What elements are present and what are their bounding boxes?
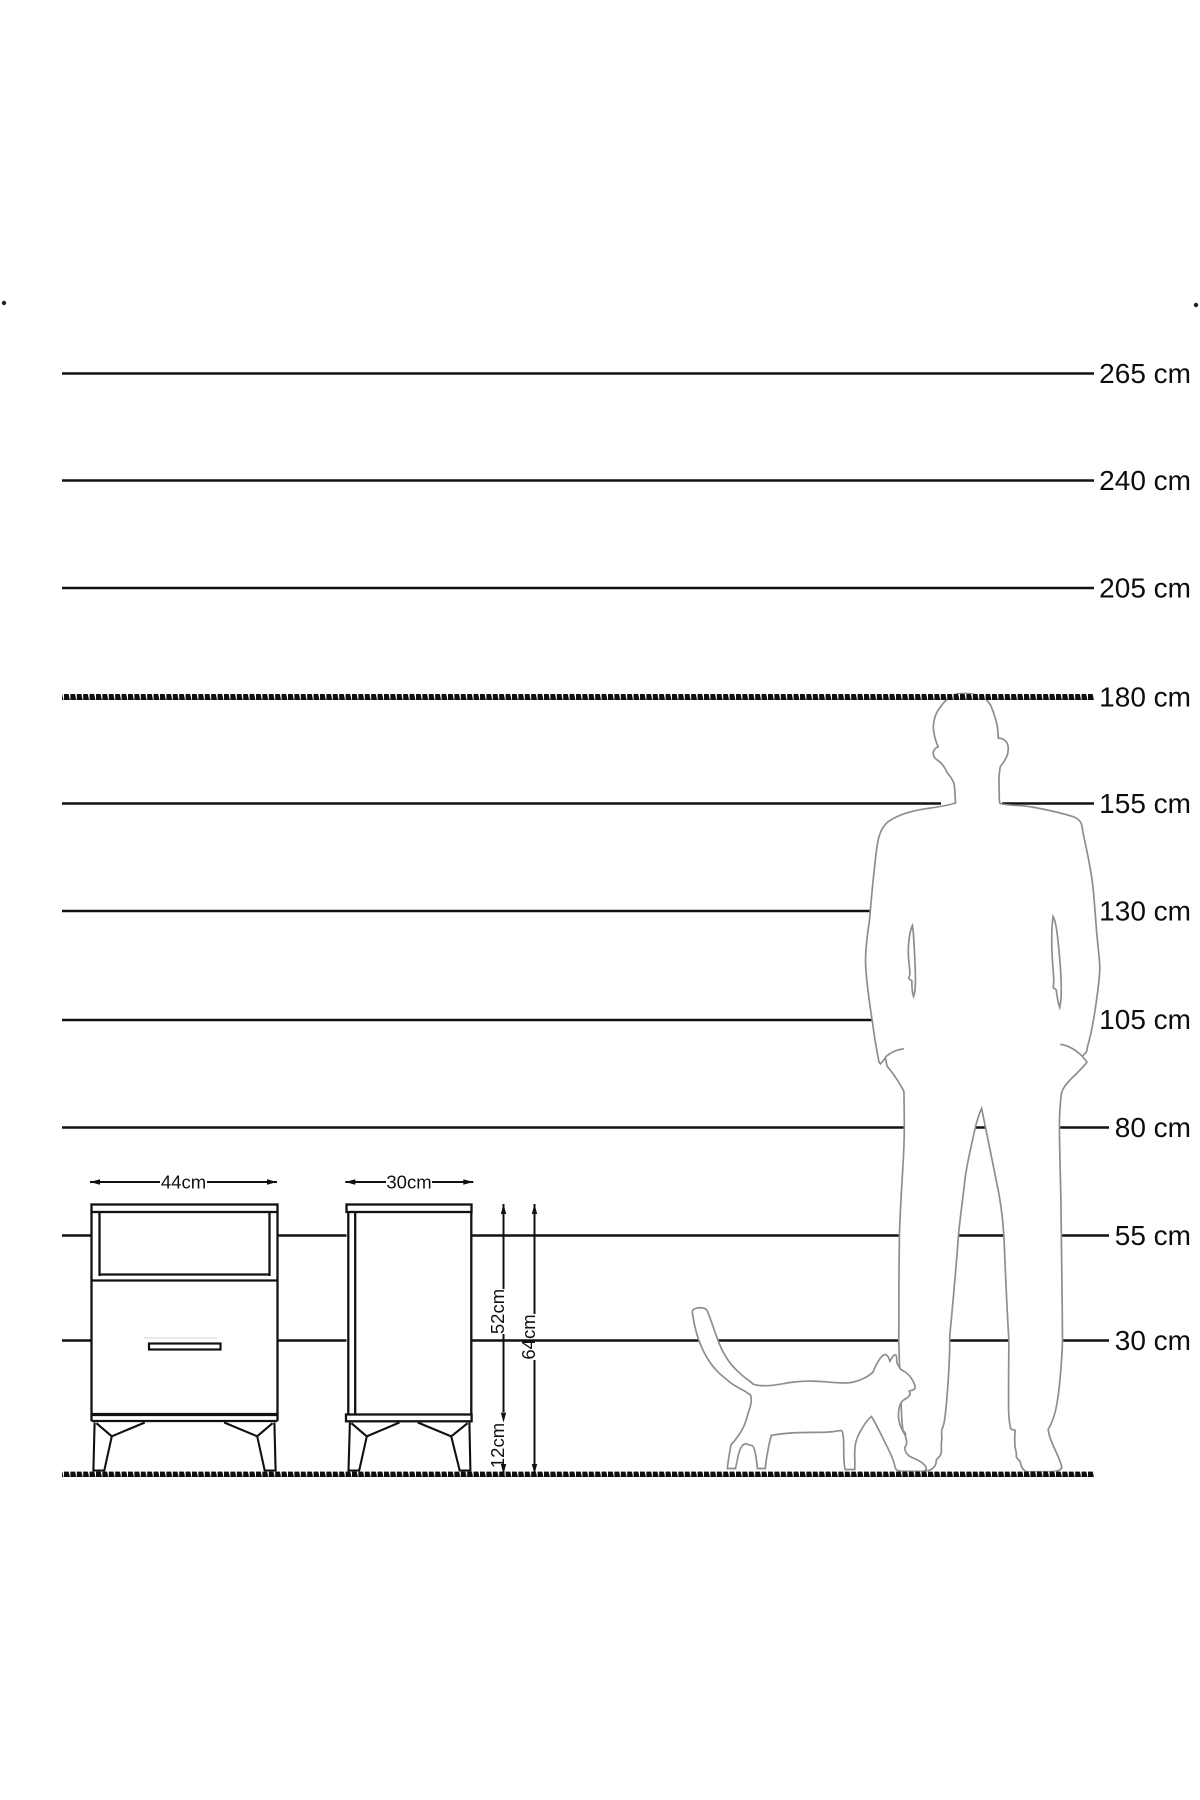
svg-text:155 cm: 155 cm: [1099, 788, 1191, 819]
svg-text:30cm: 30cm: [386, 1172, 431, 1193]
svg-text:130 cm: 130 cm: [1099, 896, 1191, 927]
svg-text:12cm: 12cm: [487, 1423, 508, 1468]
svg-text:265 cm: 265 cm: [1099, 358, 1191, 389]
svg-text:105 cm: 105 cm: [1099, 1004, 1191, 1035]
svg-text:240 cm: 240 cm: [1099, 465, 1191, 496]
svg-text:44cm: 44cm: [161, 1172, 206, 1193]
svg-text:180 cm: 180 cm: [1099, 682, 1191, 713]
svg-text:52cm: 52cm: [487, 1289, 508, 1334]
svg-text:30 cm: 30 cm: [1115, 1325, 1191, 1356]
svg-text:55 cm: 55 cm: [1115, 1220, 1191, 1251]
svg-text:205 cm: 205 cm: [1099, 573, 1191, 604]
svg-text:80 cm: 80 cm: [1115, 1112, 1191, 1143]
svg-text:64cm: 64cm: [518, 1314, 539, 1359]
